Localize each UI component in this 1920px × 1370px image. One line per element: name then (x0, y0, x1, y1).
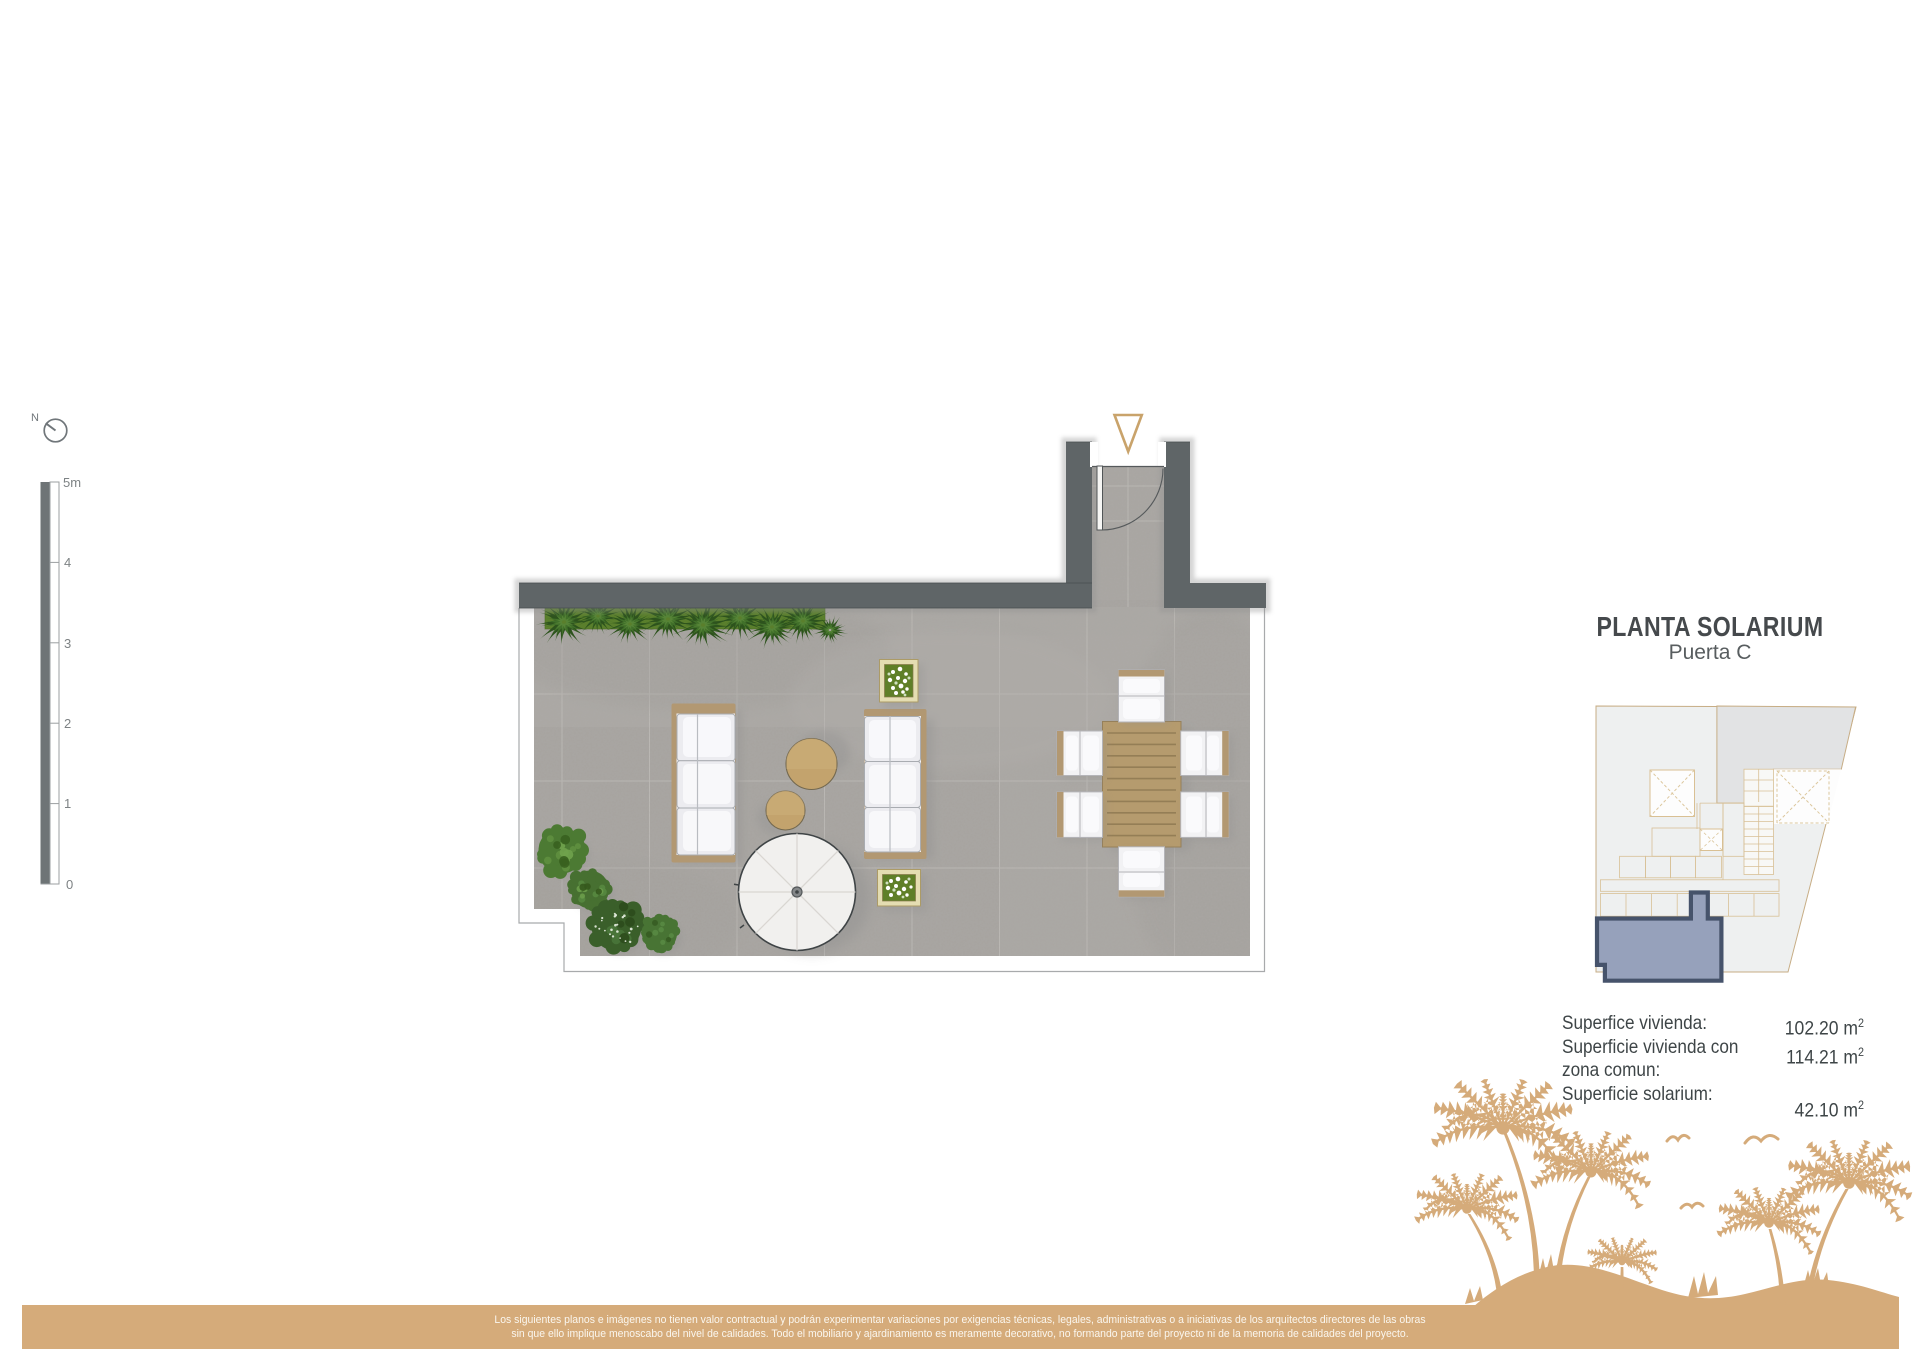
svg-text:2: 2 (64, 716, 71, 731)
svg-text:3: 3 (64, 636, 71, 651)
svg-text:0: 0 (66, 877, 73, 892)
svg-text:4: 4 (64, 555, 71, 570)
svg-text:N: N (31, 412, 39, 424)
svg-text:5m: 5m (63, 475, 81, 490)
svg-text:1: 1 (64, 796, 71, 811)
